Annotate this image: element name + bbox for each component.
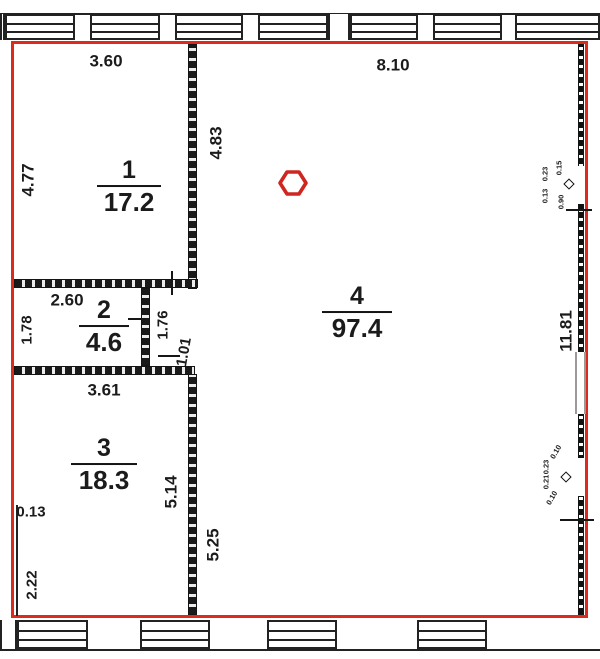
room-4-label: 4 97.4 bbox=[322, 282, 392, 344]
wall-right-exterior bbox=[578, 44, 584, 615]
wall-detail-label: 0.21 bbox=[542, 475, 550, 490]
dim-label: 3.60 bbox=[89, 53, 122, 70]
window-top-6 bbox=[433, 14, 502, 40]
wall-room3-room4 bbox=[188, 374, 197, 615]
dim-label: 5.25 bbox=[205, 528, 222, 561]
wall-pier bbox=[0, 620, 17, 649]
dim-label: 2.60 bbox=[50, 292, 83, 309]
wall-detail-label: 0.13 bbox=[541, 189, 549, 204]
wall-pier bbox=[328, 14, 350, 40]
room-2-label: 2 4.6 bbox=[79, 296, 129, 358]
room-area: 4.6 bbox=[86, 327, 122, 358]
wall-pier bbox=[0, 14, 5, 40]
dimension-tick bbox=[171, 271, 173, 295]
dim-label: 4.77 bbox=[20, 163, 37, 196]
window-bottom-2 bbox=[140, 620, 210, 649]
wall-room2-room3 bbox=[14, 366, 195, 375]
wall-detail-label: 0.23 bbox=[541, 167, 549, 182]
dimension-tick bbox=[566, 209, 592, 211]
wall-room2-passage bbox=[141, 288, 150, 366]
room-area: 18.3 bbox=[79, 465, 130, 496]
dim-label: 11.81 bbox=[558, 310, 575, 352]
door-opening-bottom bbox=[577, 458, 585, 496]
window-top-7 bbox=[515, 14, 600, 40]
dim-label: 1.76 bbox=[156, 310, 171, 339]
room-3-label: 3 18.3 bbox=[71, 434, 137, 496]
room-number: 2 bbox=[79, 296, 129, 327]
bottom-facade-line bbox=[0, 649, 600, 651]
window-top-2 bbox=[90, 14, 160, 40]
window-top-4 bbox=[258, 14, 328, 40]
door-opening-top bbox=[577, 166, 585, 204]
dimension-tick bbox=[128, 318, 146, 320]
room-number: 1 bbox=[97, 156, 161, 187]
dim-label: 1.78 bbox=[20, 315, 35, 344]
window-top-5 bbox=[350, 14, 418, 40]
window-top-3 bbox=[175, 14, 243, 40]
room-number: 3 bbox=[71, 434, 137, 465]
dim-label: 2.22 bbox=[25, 570, 40, 599]
wall-detail-label: 0.23 bbox=[542, 460, 550, 475]
wall-room1-room4 bbox=[188, 44, 197, 289]
left-offset-line bbox=[16, 505, 18, 616]
dim-label: 0.13 bbox=[16, 505, 45, 520]
hexagon-marker-icon bbox=[278, 168, 308, 198]
room-number: 4 bbox=[322, 282, 392, 313]
window-top-1 bbox=[5, 14, 75, 40]
wall-detail-label: 0.15 bbox=[555, 161, 563, 176]
window-bottom-4 bbox=[417, 620, 487, 649]
dimension-tick bbox=[560, 519, 594, 521]
window-bottom-3 bbox=[267, 620, 337, 649]
dim-label: 3.61 bbox=[87, 382, 120, 399]
floor-plan: 1 17.2 2 4.6 3 18.3 4 97.4 3.60 8.10 4.7… bbox=[0, 0, 600, 659]
window-bottom-1 bbox=[17, 620, 88, 649]
room-1-label: 1 17.2 bbox=[97, 156, 161, 218]
room-area: 17.2 bbox=[104, 187, 155, 218]
dim-label: 8.10 bbox=[376, 57, 409, 74]
dim-label: 5.14 bbox=[163, 475, 180, 508]
room-area: 97.4 bbox=[332, 313, 383, 344]
window-right bbox=[575, 352, 586, 414]
wall-detail-label: 0.90 bbox=[557, 195, 565, 210]
dim-label: 4.83 bbox=[208, 126, 225, 159]
